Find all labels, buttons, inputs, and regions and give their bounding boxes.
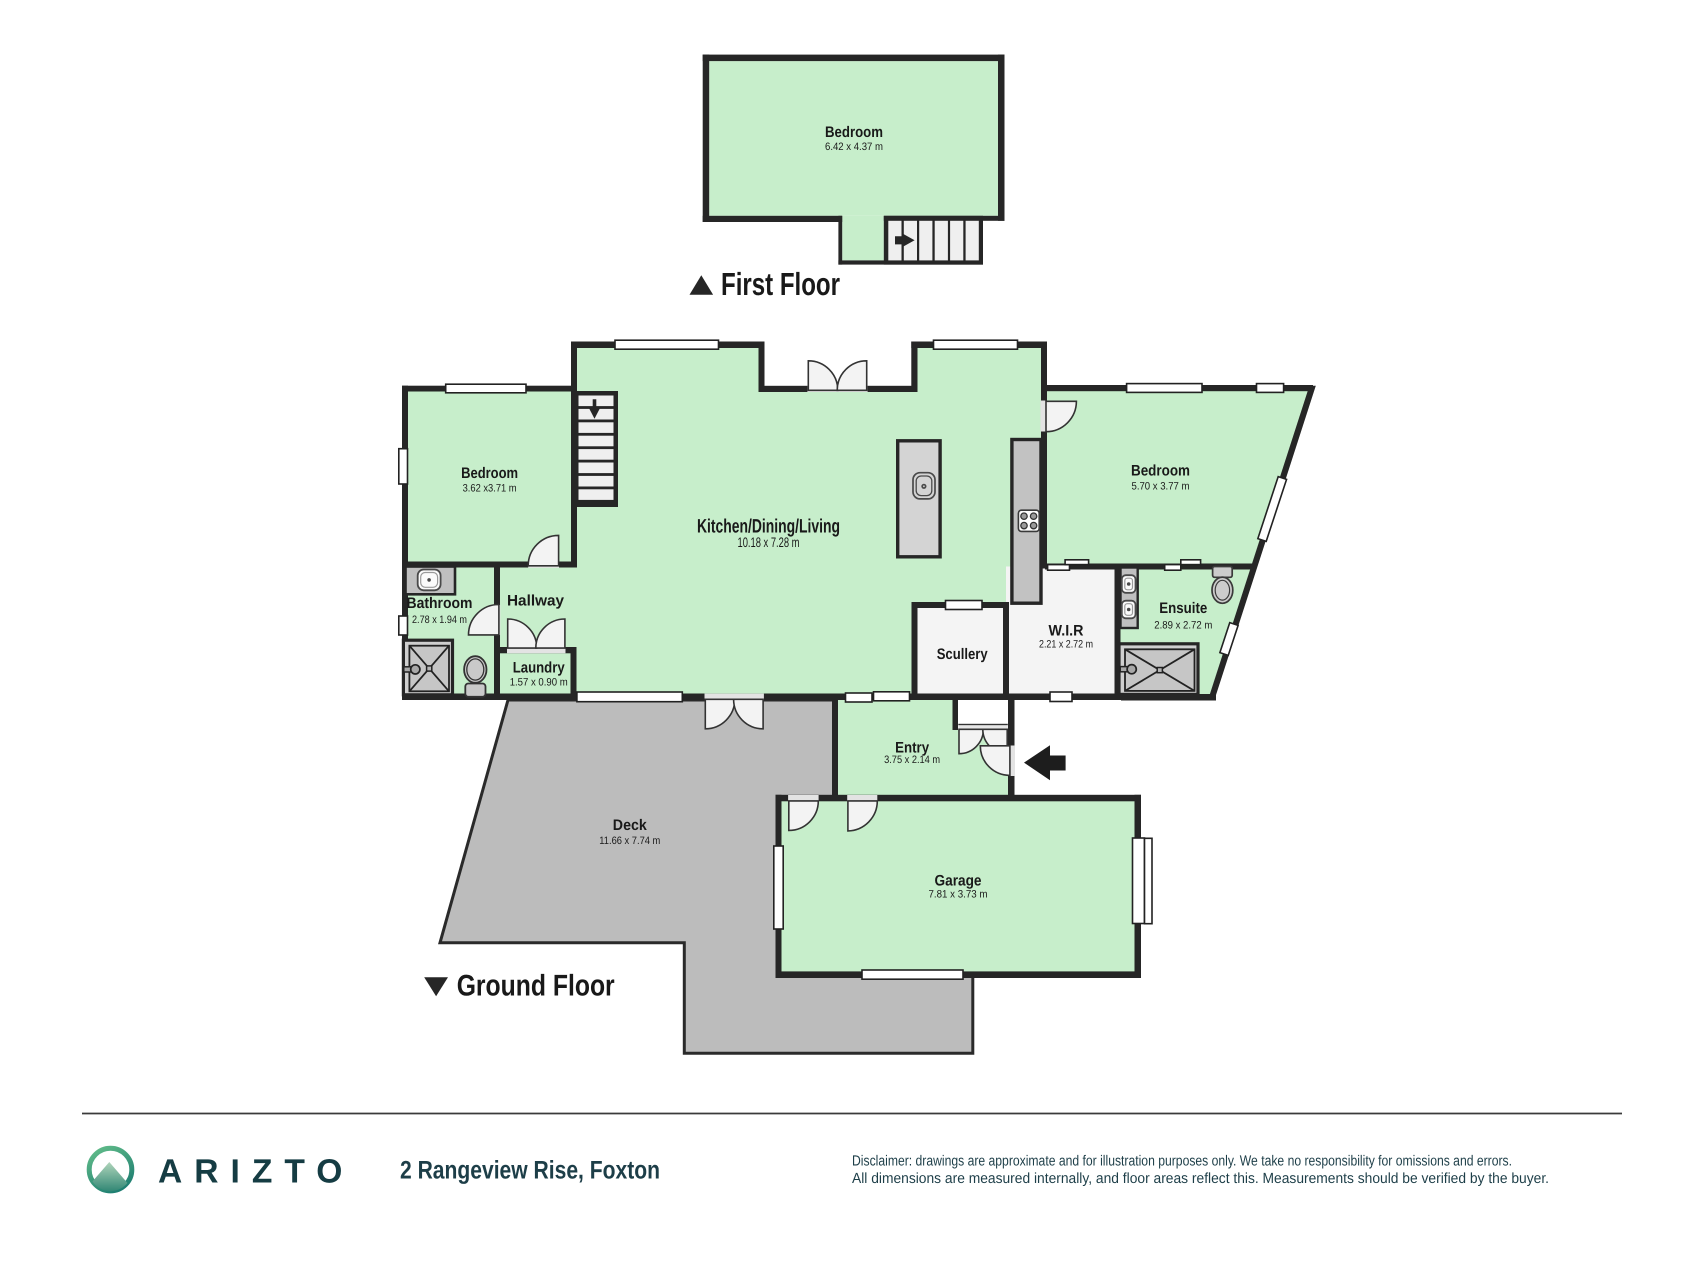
svg-text:3.62 x3.71 m: 3.62 x3.71 m bbox=[463, 483, 517, 495]
svg-text:6.42 x 4.37 m: 6.42 x 4.37 m bbox=[825, 141, 883, 153]
svg-text:Deck: Deck bbox=[613, 817, 647, 834]
svg-text:Ensuite: Ensuite bbox=[1159, 600, 1207, 617]
svg-text:Hallway: Hallway bbox=[507, 592, 564, 609]
svg-text:Scullery: Scullery bbox=[937, 646, 988, 663]
svg-text:10.18 x 7.28 m: 10.18 x 7.28 m bbox=[738, 535, 800, 550]
svg-text:Bedroom: Bedroom bbox=[1131, 462, 1190, 479]
svg-text:Garage: Garage bbox=[935, 873, 982, 890]
svg-text:Bedroom: Bedroom bbox=[461, 465, 518, 482]
svg-text:Bedroom: Bedroom bbox=[825, 124, 883, 141]
svg-text:2.21 x 2.72 m: 2.21 x 2.72 m bbox=[1039, 639, 1093, 651]
svg-text:Ground Floor: Ground Floor bbox=[457, 970, 615, 1003]
svg-text:Laundry: Laundry bbox=[513, 660, 565, 677]
svg-text:First Floor: First Floor bbox=[721, 266, 840, 302]
svg-text:3.75 x 2.14 m: 3.75 x 2.14 m bbox=[884, 754, 940, 766]
svg-text:5.70 x 3.77 m: 5.70 x 3.77 m bbox=[1132, 481, 1190, 493]
svg-text:All dimensions are measured in: All dimensions are measured internally, … bbox=[852, 1171, 1549, 1187]
svg-text:1.57 x 0.90 m: 1.57 x 0.90 m bbox=[510, 676, 568, 688]
svg-text:2.89 x 2.72 m: 2.89 x 2.72 m bbox=[1154, 619, 1212, 631]
svg-text:Kitchen/Dining/Living: Kitchen/Dining/Living bbox=[697, 515, 840, 537]
svg-text:Disclaimer: drawings are appro: Disclaimer: drawings are approximate and… bbox=[852, 1154, 1512, 1170]
svg-text:2 Rangeview Rise, Foxton: 2 Rangeview Rise, Foxton bbox=[400, 1157, 660, 1185]
svg-text:ARIZTO: ARIZTO bbox=[158, 1154, 354, 1191]
svg-text:11.66 x 7.74 m: 11.66 x 7.74 m bbox=[599, 835, 660, 847]
svg-text:2.78 x 1.94 m: 2.78 x 1.94 m bbox=[412, 614, 467, 626]
svg-text:Bathroom: Bathroom bbox=[407, 595, 473, 612]
svg-text:7.81 x 3.73 m: 7.81 x 3.73 m bbox=[929, 889, 988, 901]
svg-text:W.I.R: W.I.R bbox=[1049, 622, 1084, 639]
